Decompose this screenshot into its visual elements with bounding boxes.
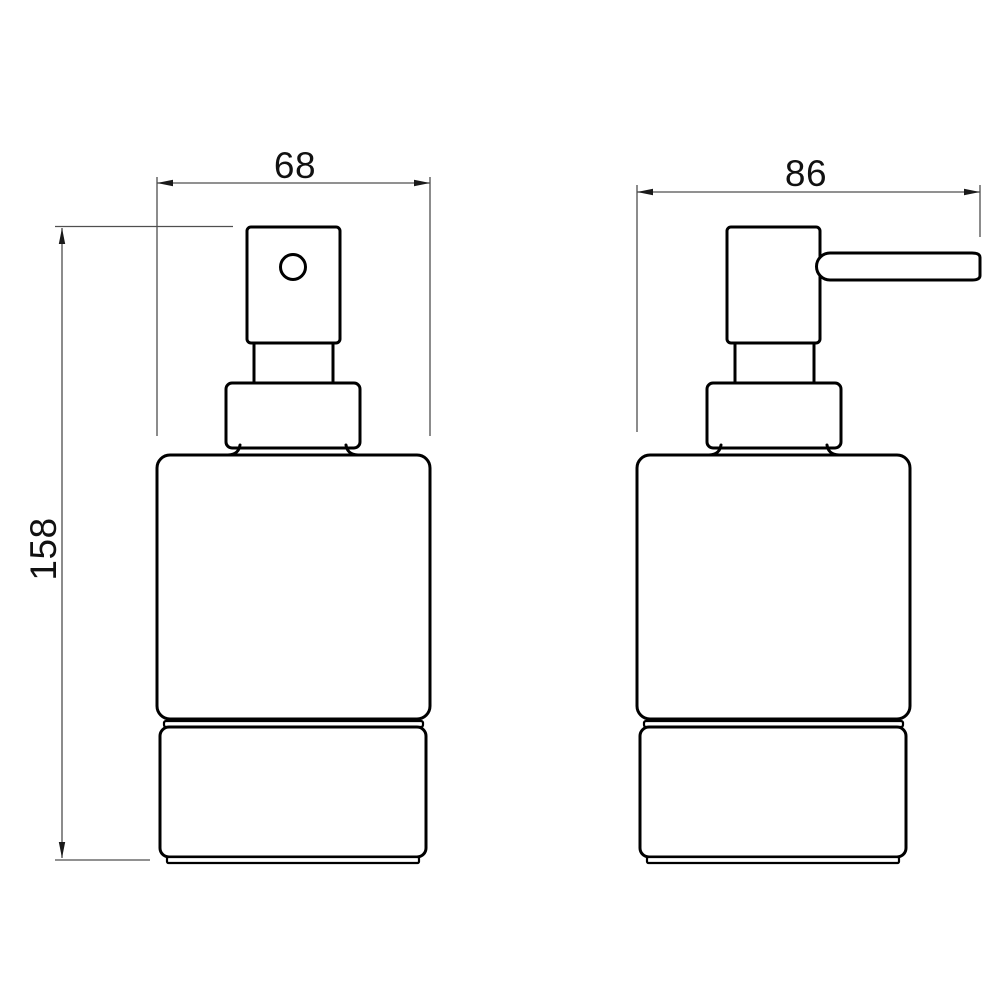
dim-arrow-left (157, 180, 173, 186)
base-cup (160, 727, 426, 857)
pump-collar-side (707, 383, 841, 448)
pump-stem (254, 343, 333, 383)
front-view (157, 227, 430, 863)
dim-arrow-right (964, 189, 980, 195)
pump-head-side (727, 227, 820, 343)
bottle-body (157, 455, 430, 719)
side-view (637, 227, 980, 863)
base-plate (167, 857, 419, 863)
side-width-label: 86 (785, 153, 827, 194)
dim-arrow-left (637, 189, 653, 195)
pump-stem-side (735, 343, 814, 383)
dim-arrow-bottom (59, 842, 65, 858)
spout (817, 253, 981, 280)
front-width-label: 68 (274, 145, 316, 186)
nozzle-hole (281, 255, 306, 280)
height-label: 158 (23, 517, 64, 580)
base-plate-side (647, 857, 899, 863)
bottle-body-side (637, 455, 910, 719)
base-cup-side (640, 727, 906, 857)
pump-head (247, 227, 340, 343)
drawing-canvas: 68 86 158 (0, 0, 1000, 1000)
pump-collar (226, 383, 360, 448)
dim-arrow-top (59, 228, 65, 244)
dim-arrow-right (414, 180, 430, 186)
